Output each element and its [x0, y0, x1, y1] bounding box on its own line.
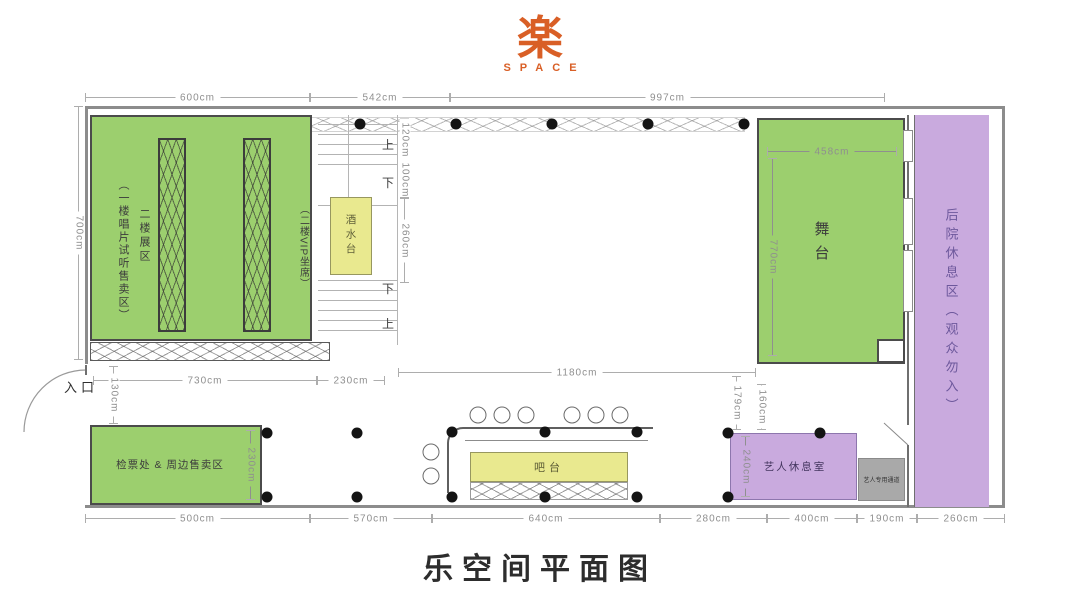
wall-top [85, 106, 1005, 109]
corridor-divider [348, 115, 349, 205]
dim-top-600: 600cm [85, 97, 310, 98]
column-dot [723, 492, 734, 503]
column-dot [632, 492, 643, 503]
door-leaf [903, 198, 913, 245]
dim-label: 400cm [789, 514, 834, 525]
dim-label: 640cm [523, 514, 568, 525]
dim-label: 240cm [741, 445, 752, 488]
bar-stool [423, 444, 440, 461]
column-dot [643, 119, 654, 130]
stair-down-label: 下 [380, 175, 396, 189]
record-area-label: （一楼唱片试听售卖区） [112, 168, 134, 333]
dim-label: 230cm [246, 443, 257, 486]
truss-column [243, 138, 271, 332]
page-title: 乐空间平面图 [0, 544, 1080, 588]
wall-left [85, 106, 88, 364]
column-dot [352, 428, 363, 439]
dim-label: 700cm [74, 211, 85, 254]
dim-label: 997cm [645, 93, 690, 104]
logo-glyph: 楽 [0, 14, 1080, 62]
wall-bottom [85, 505, 1005, 508]
dim-label: 100cm [400, 158, 411, 201]
vip-label: （二楼VIP坐席） [293, 198, 313, 296]
bar-stool [564, 407, 581, 424]
stair-step [318, 310, 397, 311]
bar-label: 吧台 [470, 452, 628, 482]
dim-stage-458: 458cm [767, 151, 897, 152]
dim-left-700: 700cm [78, 106, 79, 360]
stair-step [318, 154, 397, 155]
dim-stair-100: 100cm [404, 162, 405, 198]
dim-bot-570: 570cm [310, 518, 432, 519]
dim-stage-770: 770cm [772, 158, 773, 356]
stair-step [318, 300, 397, 301]
column-dot [447, 427, 458, 438]
dim-label: 160cm [757, 385, 768, 428]
dim-stair-260: 260cm [404, 198, 405, 283]
dim-bot-640: 640cm [432, 518, 660, 519]
dim-bot-280: 280cm [660, 518, 767, 519]
logo-subtitle: SPACE [0, 62, 1080, 74]
dim-top-542: 542cm [310, 97, 450, 98]
dim-label: 260cm [938, 514, 983, 525]
dim-label: 770cm [768, 235, 779, 278]
door-leaf [903, 130, 913, 162]
ticket-label: 检票处 & 周边售卖区 [95, 455, 245, 473]
exhibit-label: 二楼展区 [134, 200, 154, 272]
artist-lounge-label: 艺人休息室 [745, 458, 845, 474]
stage-label: 舞台 [810, 210, 832, 280]
column-dot [632, 427, 643, 438]
dim-label: 260cm [400, 219, 411, 262]
bar-inner-line [465, 440, 648, 441]
dim-mid-1180: 1180cm [398, 372, 756, 373]
dim-entrance-130: 130cm [113, 366, 114, 424]
dim-mid-730: 730cm [93, 380, 317, 381]
dim-bot-190: 190cm [857, 518, 917, 519]
column-dot [540, 492, 551, 503]
backstage-wall [907, 445, 909, 507]
dim-label: 130cm [109, 373, 120, 416]
column-dot [262, 428, 273, 439]
stair-down-label: 下 [380, 281, 396, 295]
dim-label: 190cm [864, 514, 909, 525]
truss-column [158, 138, 186, 332]
truss-strip [90, 342, 330, 361]
dim-mid-230: 230cm [317, 380, 385, 381]
dim-label: 570cm [348, 514, 393, 525]
dim-lounge-179: 179cm [736, 376, 737, 430]
stair-step [318, 164, 397, 165]
bar-stool [470, 407, 487, 424]
dim-bot-260: 260cm [917, 518, 1005, 519]
column-dot [451, 119, 462, 130]
stair-up-label: 上 [380, 316, 396, 330]
stage-steps-notch [877, 339, 905, 363]
dim-label: 458cm [809, 147, 854, 158]
bar-stool [518, 407, 535, 424]
column-dot [352, 492, 363, 503]
floor-plan: 楽 SPACE （一楼唱片试听售卖区） 二楼展区 （二楼VIP坐席） 上 下 下… [0, 0, 1080, 601]
dim-label: 730cm [182, 376, 227, 387]
bar-stool [494, 407, 511, 424]
dim-lounge-160: 160cm [761, 384, 762, 430]
backyard-label: 后院休息区（观众勿入） [938, 205, 964, 420]
dim-label: 600cm [175, 93, 220, 104]
entrance-door-arc [20, 365, 90, 435]
bar-stool [588, 407, 605, 424]
column-dot [447, 492, 458, 503]
corridor-right-line [397, 115, 398, 345]
dim-label: 179cm [732, 381, 743, 424]
bar-stool [423, 468, 440, 485]
dim-label: 120cm [400, 118, 411, 161]
column-dot [355, 119, 366, 130]
dim-label: 1180cm [552, 368, 603, 379]
column-dot [540, 427, 551, 438]
door-swing-line [883, 422, 909, 446]
wall-right [1002, 106, 1005, 508]
column-dot [547, 119, 558, 130]
column-dot [815, 428, 826, 439]
column-dot [262, 492, 273, 503]
dim-lounge-240: 240cm [745, 436, 746, 497]
dim-label: 542cm [357, 93, 402, 104]
bar-stool [612, 407, 629, 424]
dim-ticket-230: 230cm [250, 430, 251, 500]
brand-logo: 楽 SPACE [0, 14, 1080, 74]
door-leaf [903, 250, 913, 312]
dim-top-997: 997cm [450, 97, 885, 98]
dim-label: 500cm [175, 514, 220, 525]
dim-stair-120: 120cm [404, 118, 405, 162]
drink-station-label: 酒水台 [338, 205, 364, 267]
dim-bot-500: 500cm [85, 518, 310, 519]
column-dot [739, 119, 750, 130]
dim-label: 280cm [691, 514, 736, 525]
dim-label: 230cm [328, 376, 373, 387]
artist-passage-label: 艺人专用通道 [859, 474, 904, 484]
stair-up-label: 上 [380, 137, 396, 151]
dim-bot-400: 400cm [767, 518, 857, 519]
